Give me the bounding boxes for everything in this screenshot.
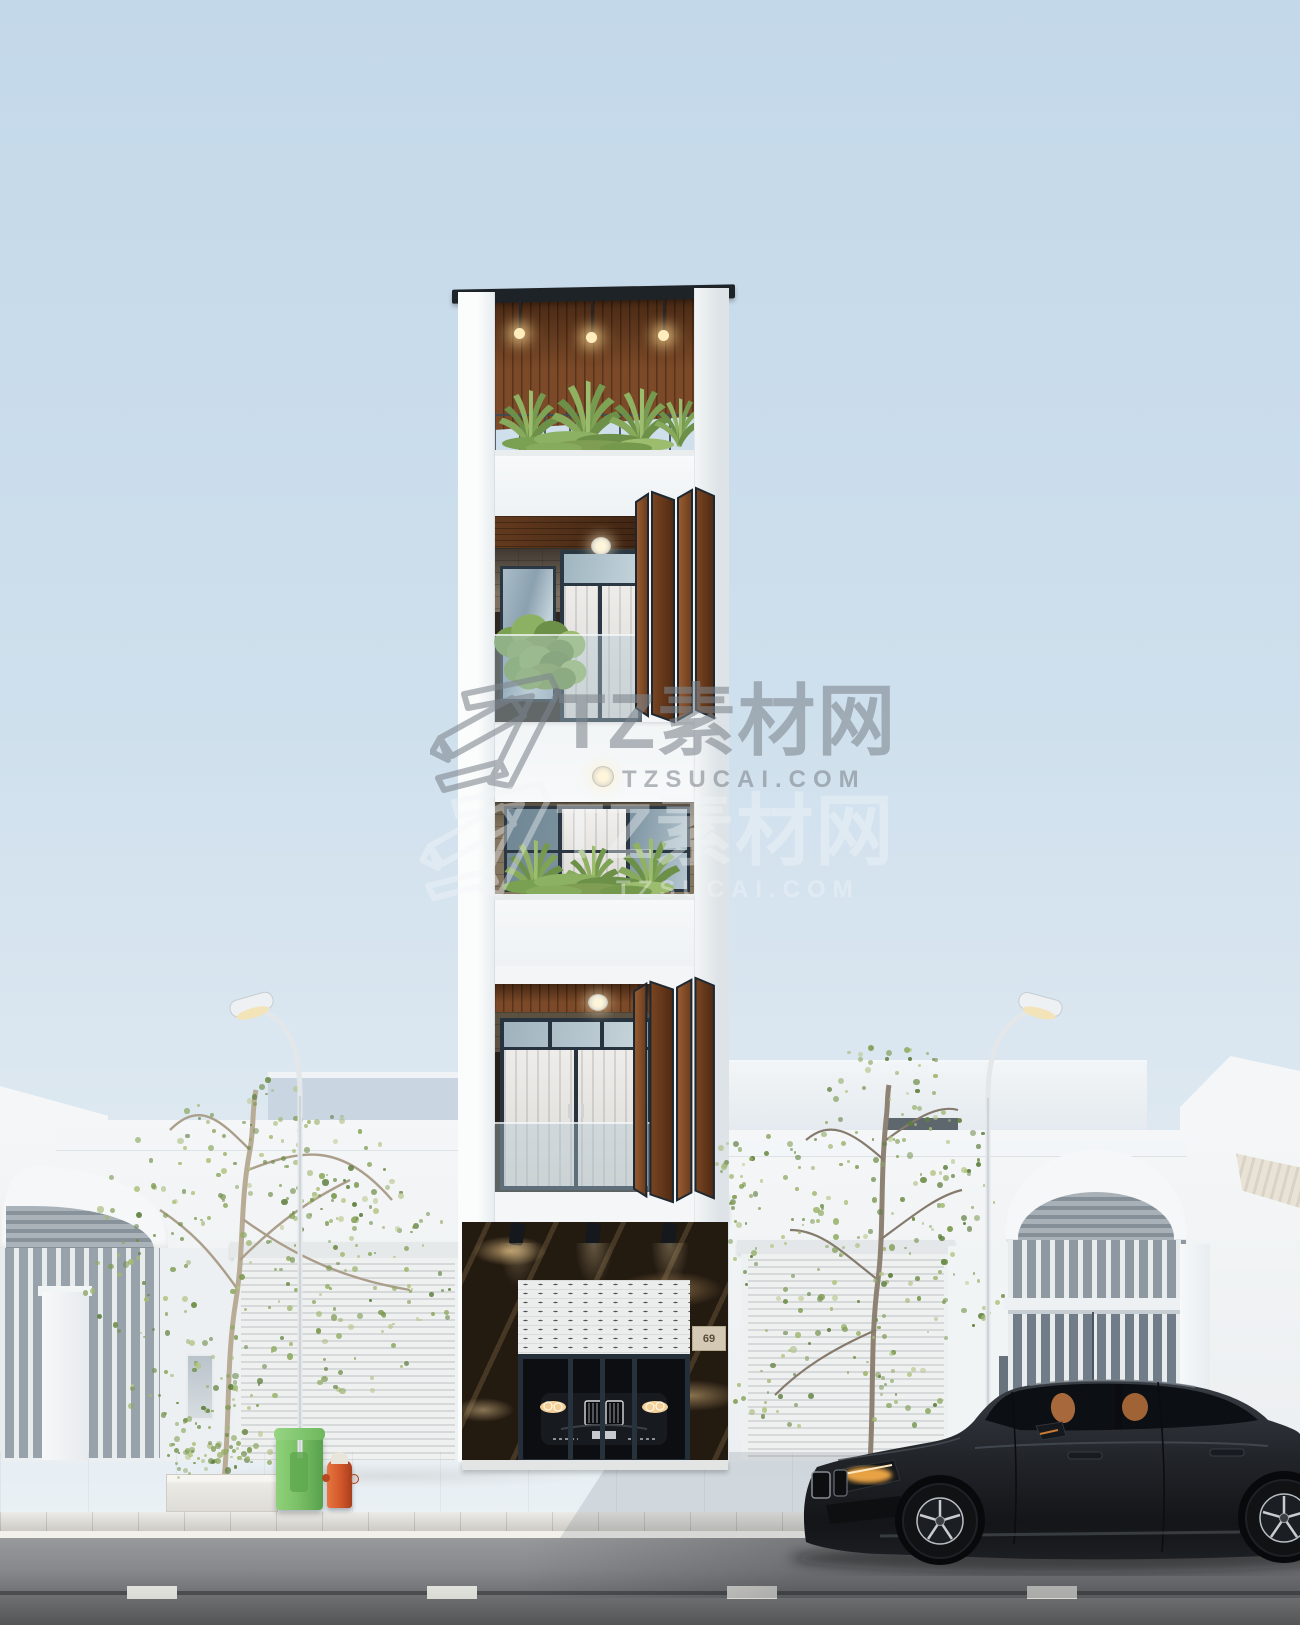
car-b-pillar <box>1115 1384 1122 1429</box>
planter-box <box>166 1474 278 1512</box>
floor3-ceiling-band <box>494 722 694 802</box>
parapet-f3 <box>494 900 694 966</box>
fire-hydrant-cap <box>331 1452 348 1464</box>
fire-hydrant-nozzle <box>322 1474 330 1482</box>
scene-canvas: 69 <box>0 0 1300 1625</box>
floor4-glass-balustrade <box>494 634 642 722</box>
floor2-door-handle <box>581 1104 584 1118</box>
trash-bin-lid <box>274 1428 325 1440</box>
pendant-light-bulb <box>586 332 597 343</box>
floor2-transom <box>504 1022 648 1050</box>
car-grille <box>834 1470 847 1496</box>
floor2-transom-mullion <box>600 1022 604 1050</box>
car-grille <box>812 1472 830 1498</box>
garage-door-mullion <box>600 1359 605 1459</box>
trash-bin-recess <box>290 1452 308 1492</box>
gate-pillar-left-shaft <box>42 1292 88 1460</box>
house-number-plaque: 69 <box>692 1326 726 1351</box>
floor2-ceiling-light <box>588 994 608 1011</box>
car-door-handle <box>1068 1452 1102 1459</box>
floor4-folding-louvers <box>634 486 718 726</box>
building-threshold <box>462 1460 728 1470</box>
floor3-band-light <box>592 766 614 787</box>
garage-door-mullion <box>632 1359 637 1459</box>
floor2-folding-louvers <box>632 976 718 1206</box>
shutter-box-right <box>737 1240 955 1254</box>
garage-door-mullion <box>568 1359 573 1459</box>
pendant-light-bulb <box>658 330 669 341</box>
car-wheel-front <box>903 1484 977 1558</box>
neighbour-left-parapet-band <box>56 1128 462 1151</box>
parked-car <box>755 1295 1300 1600</box>
pendant-light <box>591 300 593 332</box>
floor2-transom-mullion <box>548 1022 552 1050</box>
slot-window-left <box>186 1354 214 1420</box>
car-seat <box>1122 1393 1148 1421</box>
pendant-light <box>663 300 665 330</box>
garage-roller-shutter <box>518 1280 690 1354</box>
roller-shutter-left <box>234 1258 462 1460</box>
pendant-light-bulb <box>514 328 525 339</box>
floor4-ceiling-light <box>591 537 611 555</box>
shutter-box-left <box>230 1242 462 1258</box>
floor3-planter-lip <box>494 894 694 900</box>
fire-hydrant-body <box>327 1460 352 1508</box>
pendant-light <box>519 300 521 328</box>
car-door-handle <box>1210 1449 1244 1456</box>
floor4-door-transom <box>564 554 638 586</box>
house-number-text: 69 <box>703 1333 715 1345</box>
arch-screen-bars-right <box>1008 1240 1186 1302</box>
floor4-wood-ceiling <box>494 516 642 552</box>
floor2-door-handle <box>568 1104 571 1118</box>
fire-hydrant-nozzle <box>349 1474 359 1484</box>
